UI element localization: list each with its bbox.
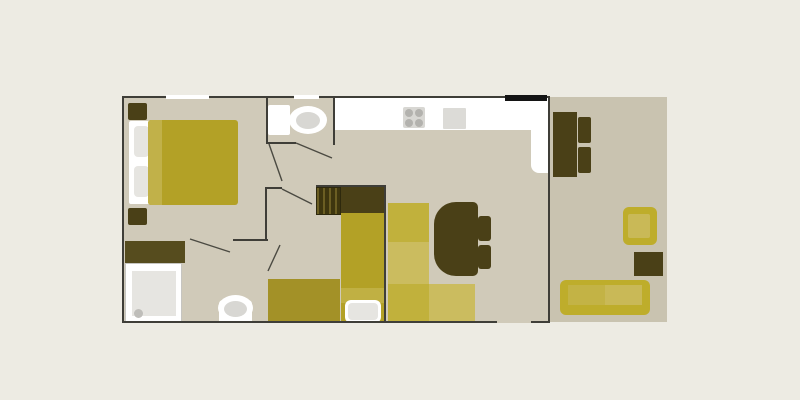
corner-sofa-corner: [388, 284, 429, 323]
sink-icon: [443, 108, 466, 129]
terrace-table: [553, 112, 577, 177]
window: [294, 95, 319, 99]
dining-table: [434, 202, 478, 276]
terrace-chair: [578, 147, 591, 173]
corner-sofa-extension: [429, 284, 475, 323]
corner-sofa-middle: [388, 242, 429, 284]
floor-plan: [0, 0, 800, 400]
dining-chair: [478, 216, 491, 241]
bench-bed: [268, 279, 340, 323]
pillow: [134, 166, 149, 197]
wall: [384, 185, 386, 323]
single-bed-pillow-inner: [348, 303, 378, 320]
toilet-bowl-inner: [224, 301, 247, 317]
terrace-sofa-cushion: [605, 285, 642, 305]
shower-drain-icon: [134, 309, 143, 318]
wall: [122, 321, 497, 323]
wall: [208, 96, 295, 98]
corner-sofa-top: [388, 203, 429, 242]
terrace-sofa-cushion: [568, 285, 605, 305]
duvet-fold: [148, 120, 162, 205]
wall: [233, 239, 268, 241]
stairs: [316, 187, 341, 215]
wall: [266, 96, 268, 144]
burner-icon: [405, 119, 413, 127]
terrace-side-table: [634, 252, 663, 276]
burner-icon: [415, 109, 423, 117]
burner-icon: [405, 109, 413, 117]
wall: [265, 187, 267, 241]
toilet-tank: [268, 105, 290, 135]
bed-head-cabinet: [341, 186, 385, 213]
wall: [333, 96, 335, 145]
wall: [548, 96, 550, 323]
wall: [122, 96, 124, 323]
pillow: [134, 126, 149, 157]
nightstand: [128, 208, 147, 225]
terrace-chair: [578, 117, 591, 143]
entry-door: [505, 95, 547, 101]
wall: [316, 185, 386, 187]
nightstand: [128, 103, 147, 120]
burner-icon: [415, 119, 423, 127]
dining-chair: [478, 245, 491, 269]
window: [166, 95, 209, 99]
wall: [266, 142, 296, 144]
toilet-bowl-inner: [296, 112, 320, 129]
terrace-armchair-seat: [628, 214, 650, 238]
stove-icon: [403, 107, 425, 128]
wall: [265, 187, 282, 189]
wall: [122, 96, 167, 98]
wardrobe-cabinet: [125, 241, 185, 263]
kitchen-counter: [334, 98, 550, 130]
